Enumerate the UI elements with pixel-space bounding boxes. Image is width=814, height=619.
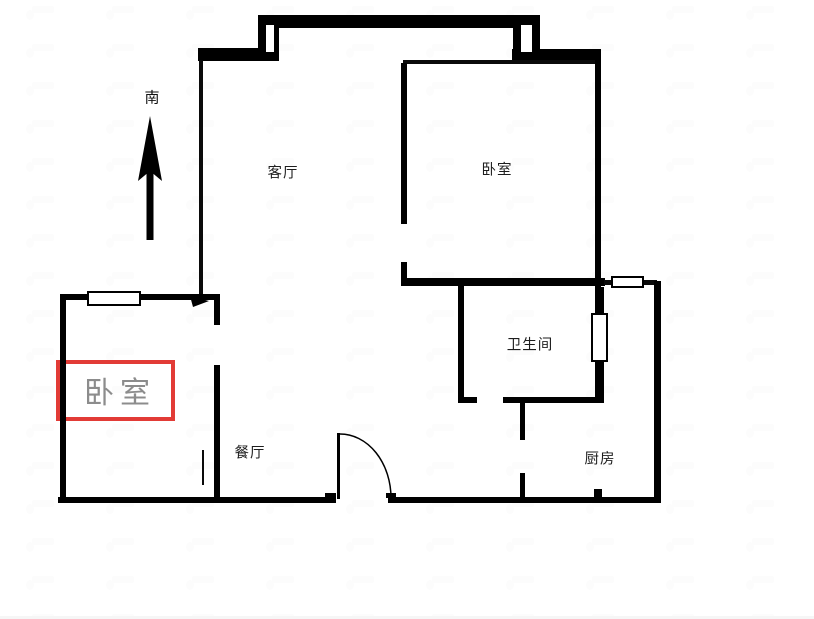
room-label-bedroom-main: 卧室 <box>482 159 513 180</box>
kitchen-top-window <box>611 276 644 288</box>
bay-right-window-slot <box>521 25 532 52</box>
compass-label: 南 <box>144 87 159 108</box>
overlay-graphics <box>0 0 814 619</box>
room-label-dining: 餐厅 <box>235 442 266 463</box>
floorplan: 南 客厅 卧室 卫生间 餐厅 厨房 卧室 <box>0 0 814 619</box>
bay-left-window-slot <box>266 25 274 52</box>
wall-junction-blob <box>190 296 209 307</box>
floorplan-screenshot: 南 客厅 卧室 卫生间 餐厅 厨房 卧室 <box>0 0 814 619</box>
room-label-bedroom-highlighted: 卧室 <box>84 368 156 412</box>
bathroom-window <box>591 313 608 362</box>
room-label-bathroom: 卫生间 <box>507 334 554 355</box>
entry-door-arc <box>340 434 391 498</box>
room-label-kitchen: 厨房 <box>585 448 616 469</box>
north-arrow-icon <box>138 116 162 240</box>
room-label-living: 客厅 <box>268 162 299 183</box>
leftbedroom-window <box>87 291 141 306</box>
